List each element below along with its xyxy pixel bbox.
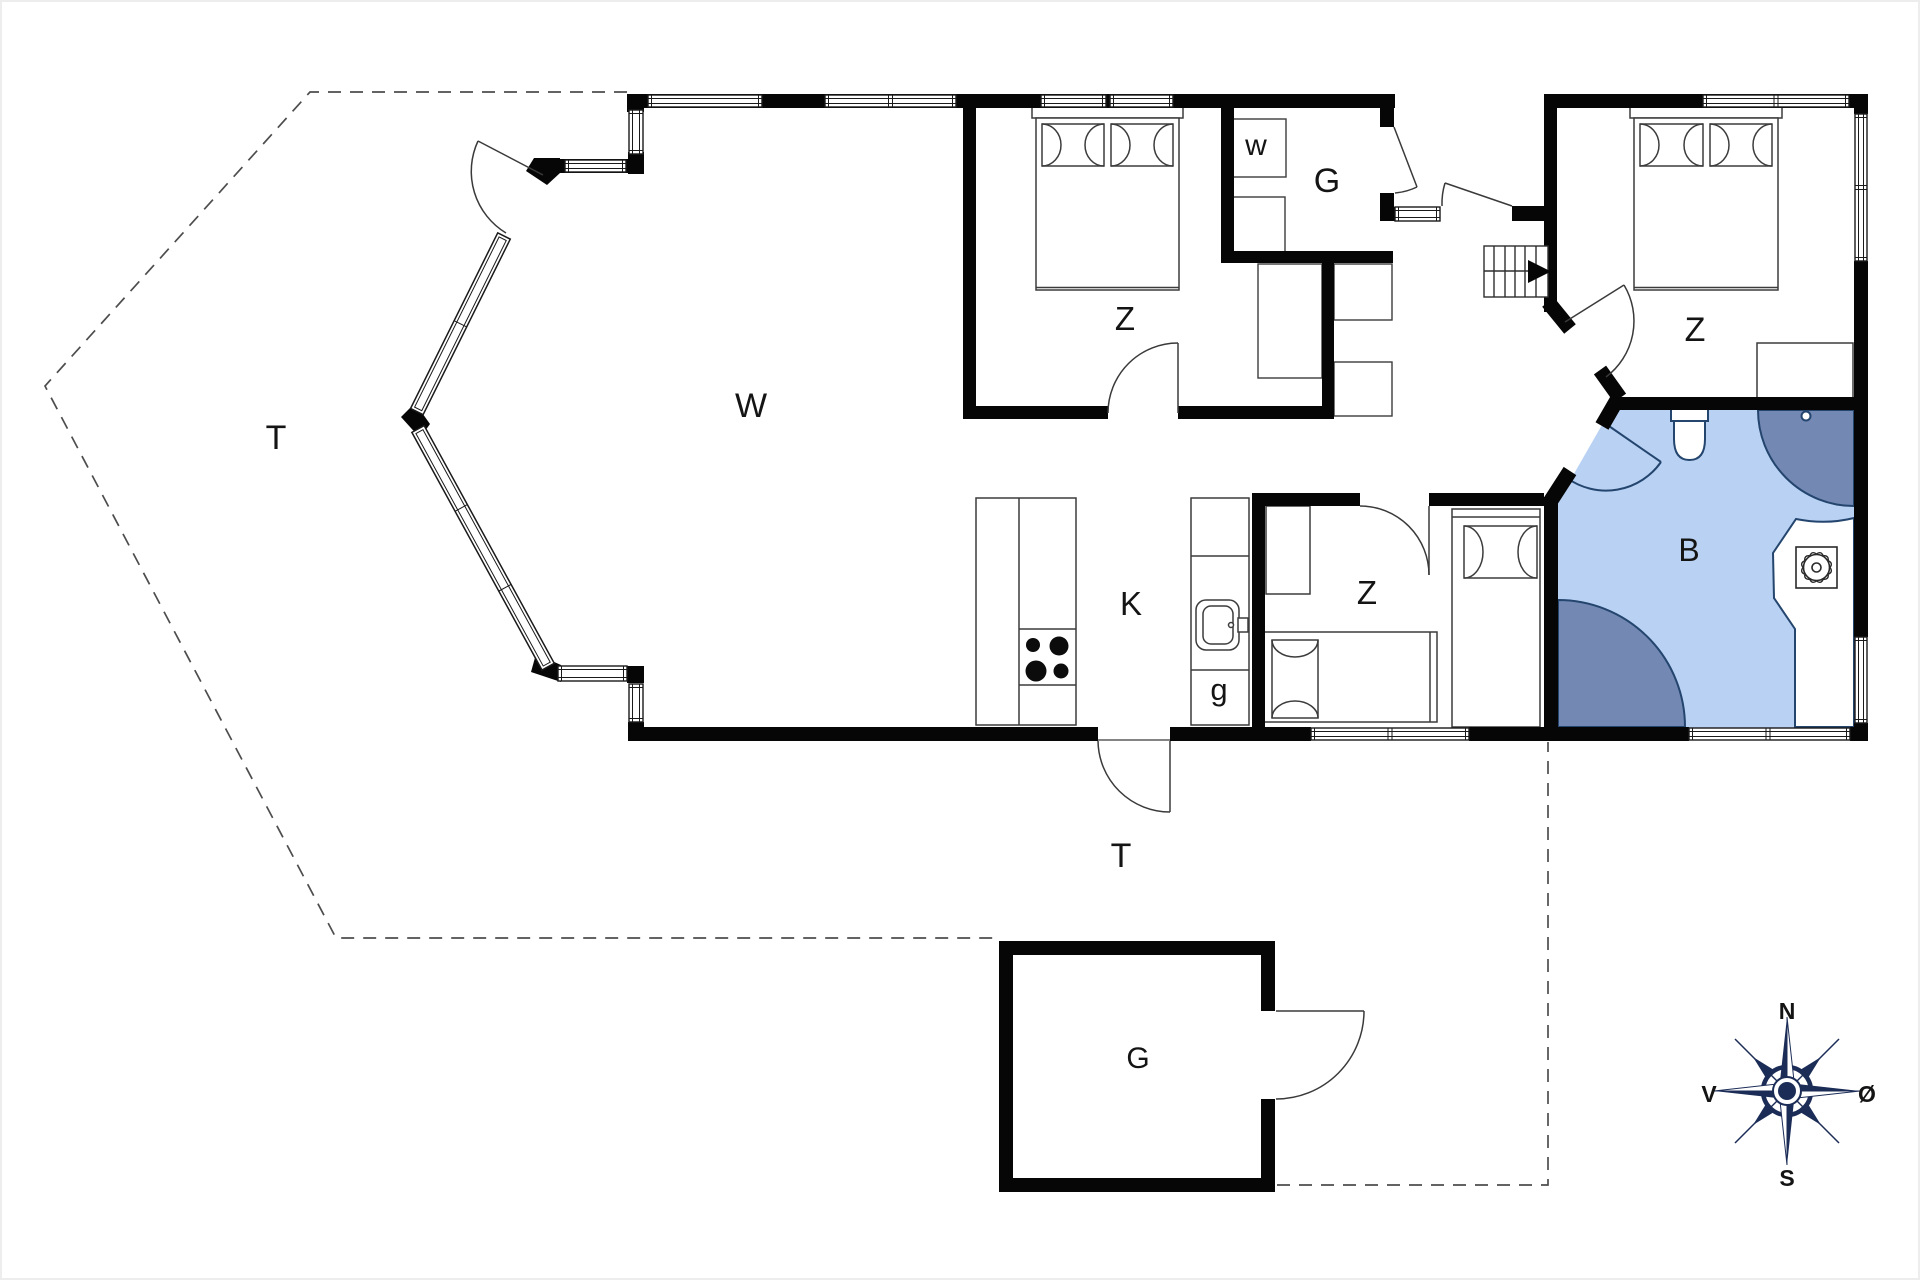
- svg-text:G: G: [1126, 1042, 1149, 1075]
- svg-text:K: K: [1120, 585, 1142, 622]
- svg-text:T: T: [1111, 837, 1132, 875]
- svg-text:B: B: [1678, 532, 1699, 568]
- svg-text:G: G: [1314, 162, 1340, 200]
- svg-text:Z: Z: [1357, 574, 1377, 611]
- svg-text:W: W: [735, 387, 767, 425]
- svg-text:N: N: [1779, 998, 1796, 1024]
- svg-text:S: S: [1779, 1165, 1794, 1191]
- svg-text:Z: Z: [1685, 311, 1706, 349]
- svg-text:T: T: [266, 419, 287, 457]
- svg-text:Z: Z: [1115, 300, 1135, 337]
- svg-text:w: w: [1244, 129, 1267, 162]
- svg-text:g: g: [1210, 672, 1227, 707]
- svg-text:Ø: Ø: [1858, 1081, 1876, 1107]
- svg-text:V: V: [1701, 1081, 1717, 1107]
